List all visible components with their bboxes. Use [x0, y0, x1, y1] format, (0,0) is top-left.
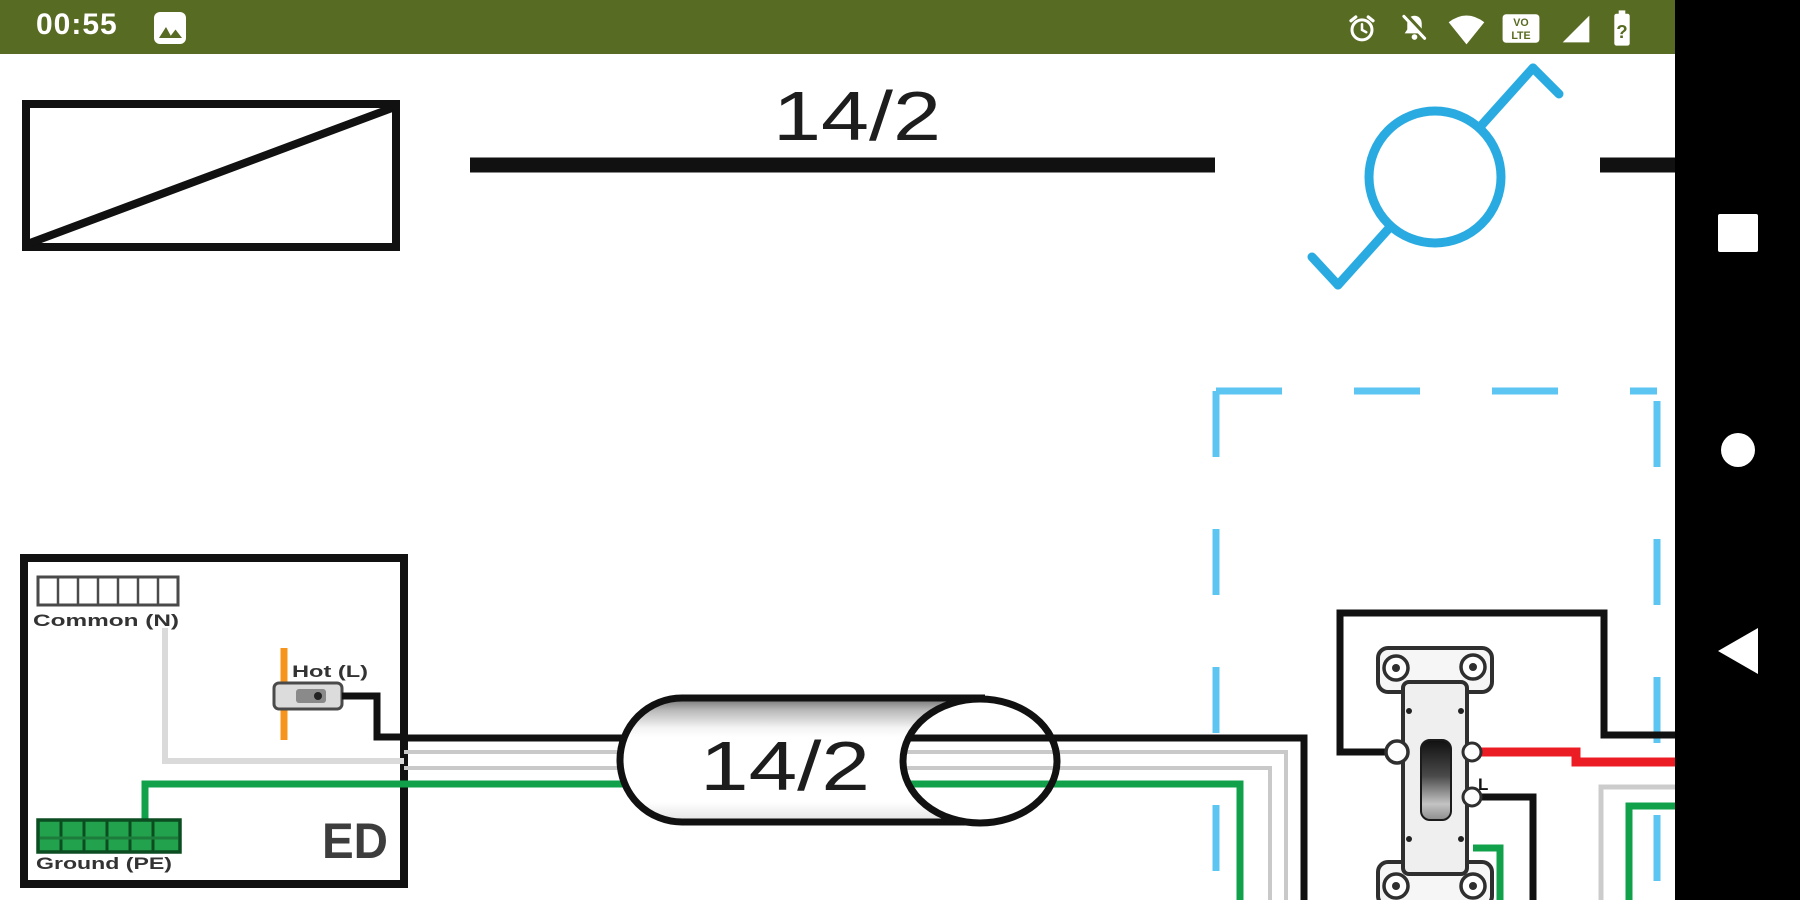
clock: 00:55: [36, 8, 118, 42]
hot-connector[interactable]: [274, 683, 342, 709]
bundle-size-label: 14/2: [700, 727, 870, 805]
home-circle-icon: [1720, 432, 1756, 468]
switch-toggle[interactable]: [1421, 740, 1451, 820]
back-button[interactable]: [1675, 611, 1800, 691]
panel-ed[interactable]: Common (N) Hot (L) Ground (PE) E: [24, 558, 404, 884]
battery-icon: ?: [1611, 9, 1633, 47]
svg-text:VO: VO: [1513, 17, 1528, 29]
cable-run-top[interactable]: 14/2: [470, 77, 1215, 165]
android-screen: 00:55 VO LTE: [0, 0, 1800, 900]
traveler-red-wire: [1473, 752, 1675, 762]
svg-text:LTE: LTE: [1511, 30, 1530, 42]
wire-bundle-left[interactable]: [404, 738, 645, 784]
recents-button[interactable]: [1675, 193, 1800, 273]
light-fixture-symbol[interactable]: [1312, 68, 1559, 285]
notifications-off-icon: [1399, 12, 1430, 44]
common-terminal-label: Common (N): [33, 611, 179, 630]
signal-icon: [1559, 13, 1593, 45]
svg-text:?: ?: [1616, 21, 1627, 42]
screenshot-icon: [152, 11, 188, 45]
android-nav-bar: [1675, 0, 1800, 900]
alarm-icon: [1347, 13, 1377, 43]
line-terminal-label: L: [1478, 775, 1488, 794]
volte-icon: VO LTE: [1502, 13, 1540, 44]
status-bar: 00:55 VO LTE: [0, 0, 1675, 54]
wire-stubs-bottom-right[interactable]: [1601, 787, 1675, 900]
wiring-diagram-canvas[interactable]: 14/2 Common (N): [0, 54, 1675, 900]
wifi-icon: [1446, 13, 1487, 46]
home-button[interactable]: [1675, 410, 1800, 490]
cable-bundle-symbol[interactable]: 14/2: [620, 698, 1060, 823]
cable-size-label: 14/2: [773, 77, 941, 155]
back-triangle-icon: [1718, 628, 1758, 674]
neutral-terminal-strip: [38, 577, 178, 605]
ground-terminal-strip: [38, 820, 180, 852]
toggle-switch[interactable]: L: [1378, 648, 1492, 900]
recents-square-icon: [1717, 213, 1759, 253]
panel-code-label: ED: [322, 813, 388, 869]
service-panel-symbol[interactable]: [26, 104, 396, 247]
ground-terminal-label: Ground (PE): [36, 854, 172, 873]
hot-terminal-label: Hot (L): [292, 662, 368, 681]
